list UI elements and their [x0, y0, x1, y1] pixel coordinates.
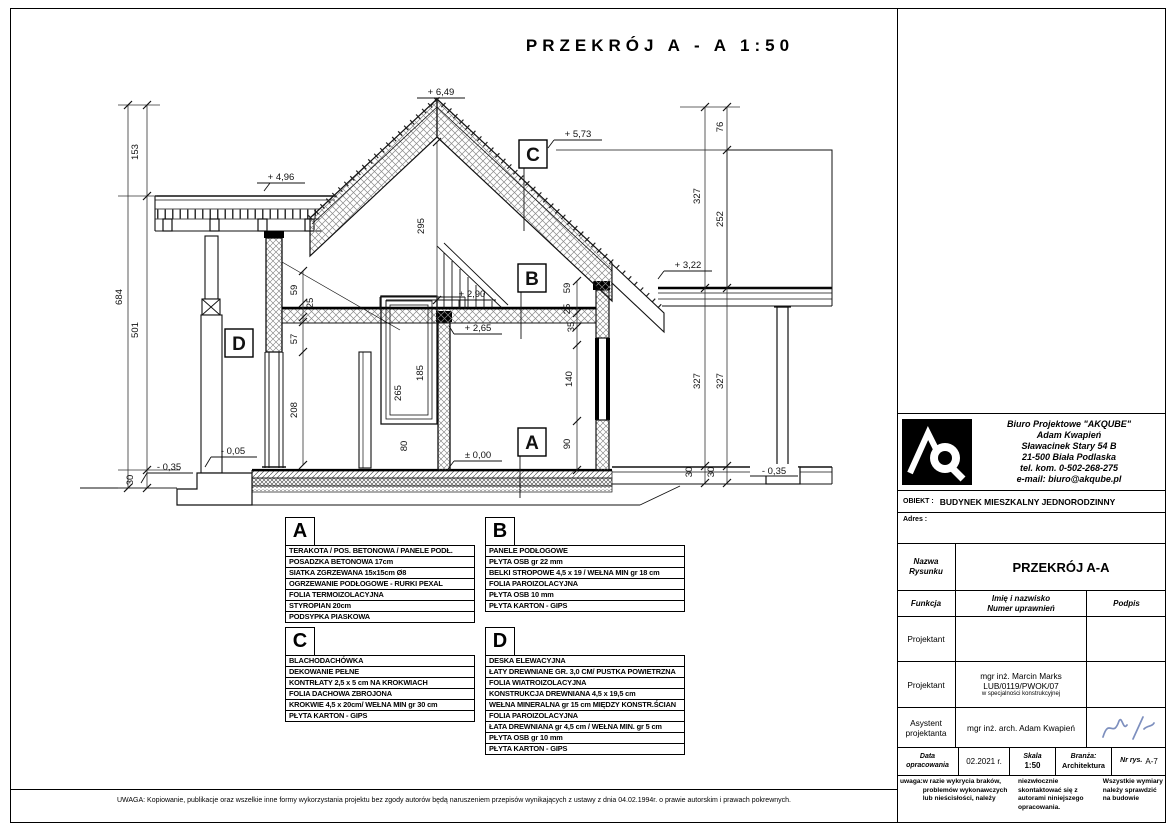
legend-letter: A	[285, 517, 315, 546]
dimension-label: - 0,05	[221, 446, 245, 457]
company-header: Biuro Projektowe "AKQUBE" Adam Kwapień S…	[897, 413, 1166, 490]
dimension-label: + 6,49	[428, 87, 455, 98]
funkcja-header: Funkcja	[897, 591, 956, 616]
dimension-label: 30	[684, 467, 695, 478]
dimension-label: 30	[706, 467, 717, 478]
nazwa-label: Nazwa Rysunku	[897, 544, 956, 590]
name-cell: mgr inż. Marcin Marks LUB/0119/PWOK/07 w…	[956, 662, 1087, 707]
data-label: Data opracowania	[897, 748, 959, 775]
dimension-label: + 2,65	[465, 323, 492, 334]
dimension-label: + 5,73	[565, 129, 592, 140]
designer-name: mgr inż. Marcin Marks	[980, 671, 1062, 681]
legend-row: PŁYTA KARTON - GIPS	[485, 743, 685, 755]
dimension-label: + 4,96	[268, 172, 295, 183]
data-row: Data opracowania 02.2021 r. Skala 1:50 B…	[897, 747, 1166, 775]
legend-rows: BLACHODACHÓWKADEKOWANIE PEŁNEKONTRŁATY 2…	[285, 656, 475, 722]
legend-row: WEŁNA MINERALNA gr 15 cm MIĘDZY KONSTR.Ś…	[485, 699, 685, 711]
legend-row: ŁATA DREWNIANA gr 4,5 cm / WEŁNA MIN. gr…	[485, 721, 685, 733]
dimension-label: 327	[692, 188, 703, 204]
callout-letter-b: B	[525, 269, 539, 290]
dimension-label: 265	[393, 385, 404, 401]
data-value: 02.2021 r.	[959, 748, 1010, 775]
left-column	[201, 236, 222, 473]
dimension-label: - 0,35	[762, 466, 786, 477]
dimension-label: 295	[416, 218, 427, 234]
callout-letter-d: D	[232, 334, 246, 355]
aq-logo-icon	[902, 419, 972, 485]
company-logo	[902, 419, 972, 485]
right-flat-roof	[658, 288, 832, 306]
uwaga-block: uwaga: w razie wykrycia braków, problemó…	[897, 775, 1166, 822]
projektant-row-1: Projektant	[897, 616, 1166, 661]
dimension-label: 25	[305, 298, 316, 309]
dimension-label: 208	[289, 402, 300, 418]
dimension-label: 80	[399, 441, 410, 452]
imie-header: Imię i nazwisko Numer uprawnień	[956, 591, 1087, 616]
designer-license: LUB/0119/PWOK/07	[983, 681, 1058, 691]
copyright-note: UWAGA: Kopiowanie, publikacje oraz wszel…	[14, 797, 894, 804]
right-terrace-slab	[612, 307, 832, 484]
legend-row: PŁYTA KARTON - GIPS	[285, 710, 475, 722]
callout-letter-a: A	[525, 433, 539, 454]
legend-rows: PANELE PODŁOGOWEPŁYTA OSB gr 22 mmBELKI …	[485, 546, 685, 612]
assistant-name: mgr inż. arch. Adam Kwapień	[956, 708, 1087, 747]
dimension-label: 57	[289, 334, 300, 345]
company-email: e-mail: biuro@akqube.pl	[972, 474, 1166, 485]
uwaga-line: Wszystkie wymiary należy sprawdzić na bu…	[1103, 778, 1164, 822]
company-tel: tel. kom. 0-502-268-275	[972, 463, 1166, 474]
dimension-label: - 0,35	[157, 462, 181, 473]
dimension-label: 501	[130, 322, 141, 338]
skala-cell: Skala 1:50	[1010, 748, 1056, 775]
dimension-label: 35	[566, 322, 577, 333]
name-cell	[956, 617, 1087, 661]
floor-slab	[252, 470, 612, 492]
legend-row: BELKI STROPOWE 4,5 x 19 / WEŁNA MIN gr 1…	[485, 567, 685, 579]
dimension-label: 76	[715, 122, 726, 133]
ceiling-structure	[282, 308, 596, 323]
legend-letter: B	[485, 517, 515, 546]
signature-cell	[1087, 708, 1166, 747]
company-addr2: 21-500 Biała Podlaska	[972, 452, 1166, 463]
funkcja-value: Asystent projektanta	[897, 708, 956, 747]
company-addr1: Sławacinek Stary 54 B	[972, 441, 1166, 452]
legend-row: PODSYPKA PIASKOWA	[285, 611, 475, 623]
uwaga-line: uwaga:	[900, 778, 923, 822]
podpis-header: Podpis	[1087, 591, 1166, 616]
legend-rows: TERAKOTA / POS. BETONOWA / PANELE PODŁ.P…	[285, 546, 475, 623]
obiekt-label: OBIEKT :	[903, 498, 934, 505]
interior-partition-wall	[436, 311, 452, 470]
legend-letter: D	[485, 627, 515, 656]
obiekt-value: BUDYNEK MIESZKALNY JEDNORODZINNY	[940, 497, 1116, 507]
legend-row: ŁATY DREWNIANE GR. 3,0 CM/ PUSTKA POWIET…	[485, 666, 685, 678]
title-block: Biuro Projektowe "AKQUBE" Adam Kwapień S…	[897, 8, 1166, 822]
podpis-cell	[1087, 662, 1166, 707]
dimension-label: 185	[415, 365, 426, 381]
company-person: Adam Kwapień	[972, 430, 1166, 441]
dimension-label: 59	[562, 283, 573, 294]
podpis-cell	[1087, 617, 1166, 661]
signature-icon	[1097, 713, 1157, 743]
legend-rows: DESKA ELEWACYJNAŁATY DREWNIANE GR. 3,0 C…	[485, 656, 685, 755]
asystent-row: Asystent projektanta mgr inż. arch. Adam…	[897, 707, 1166, 747]
dimension-label: 59	[289, 285, 300, 296]
projektant-row-2: Projektant mgr inż. Marcin Marks LUB/011…	[897, 661, 1166, 707]
dimension-label: 90	[562, 439, 573, 450]
adres-row: Adres :	[897, 512, 1166, 543]
dimension-label: 25	[562, 304, 573, 315]
uwaga-line: w razie wykrycia braków, problemów wykon…	[923, 778, 1018, 822]
dimension-label: 140	[564, 371, 575, 387]
company-name: Biuro Projektowe "AKQUBE"	[972, 419, 1166, 430]
legend-row: TERAKOTA / POS. BETONOWA / PANELE PODŁ.	[285, 545, 475, 557]
funkcja-value: Projektant	[897, 617, 956, 661]
dimension-label: 153	[130, 144, 141, 160]
dimension-label: + 3,22	[675, 260, 702, 271]
adres-label: Adres :	[903, 516, 927, 543]
legend-row: PŁYTA KARTON - GIPS	[485, 600, 685, 612]
uwaga-line: niezwłocznie skontaktować się z autorami…	[1018, 778, 1103, 822]
dimension-label: 684	[114, 289, 125, 305]
dimension-label: 327	[692, 373, 703, 389]
dimension-label: 30	[125, 475, 136, 486]
dimension-label: 327	[715, 373, 726, 389]
left-exterior-wall	[262, 231, 286, 468]
dimension-label: ± 0,00	[465, 450, 491, 461]
branza-cell: Branża: Architektura	[1056, 748, 1112, 775]
footer-divider	[10, 789, 897, 790]
designer-specialty: w specjalności konstrukcyjnej	[982, 691, 1060, 698]
callout-letter-c: C	[526, 145, 540, 166]
section-drawing: ABCD + 6,49+ 5,73+ 4,96+ 3,22+ 2,90+ 2,6…	[0, 0, 897, 515]
dimension-label: 252	[715, 211, 726, 227]
interior-door	[359, 352, 371, 468]
drawing-name: PRZEKRÓJ A-A	[956, 544, 1166, 590]
funkcja-value: Projektant	[897, 662, 956, 707]
dimension-label: + 2,90	[459, 289, 486, 300]
nr-cell: Nr rys. A-7	[1112, 748, 1166, 775]
blueprint-page: { "page": { "title": "PRZEKRÓJ A - A 1:5…	[0, 0, 1176, 832]
company-info: Biuro Projektowe "AKQUBE" Adam Kwapień S…	[972, 419, 1166, 485]
legend-letter: C	[285, 627, 315, 656]
table-header-row: Funkcja Imię i nazwisko Numer uprawnień …	[897, 590, 1166, 616]
nazwa-row: Nazwa Rysunku PRZEKRÓJ A-A	[897, 543, 1166, 590]
obiekt-row: OBIEKT : BUDYNEK MIESZKALNY JEDNORODZINN…	[897, 490, 1166, 512]
